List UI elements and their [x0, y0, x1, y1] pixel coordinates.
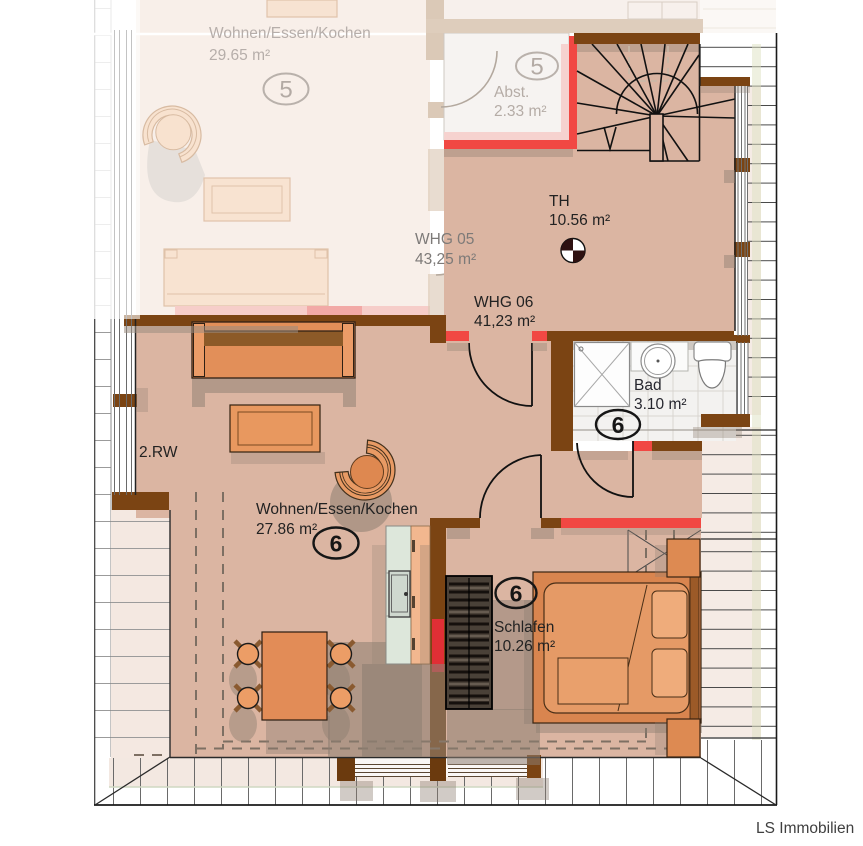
- svg-text:Wohnen/Essen/Kochen: Wohnen/Essen/Kochen: [256, 501, 418, 518]
- svg-text:6: 6: [612, 412, 625, 438]
- svg-text:Schlafen: Schlafen: [494, 619, 554, 636]
- svg-text:TH: TH: [549, 193, 570, 210]
- svg-text:2.RW: 2.RW: [139, 444, 178, 461]
- svg-text:6: 6: [510, 581, 523, 607]
- svg-text:10.26 m²: 10.26 m²: [494, 638, 555, 655]
- svg-text:Bad: Bad: [634, 377, 662, 394]
- svg-text:29.65 m²: 29.65 m²: [209, 47, 270, 64]
- svg-text:41,23 m²: 41,23 m²: [474, 313, 535, 330]
- svg-text:43,25 m²: 43,25 m²: [415, 251, 476, 268]
- svg-text:27.86 m²: 27.86 m²: [256, 521, 317, 538]
- svg-text:10.56 m²: 10.56 m²: [549, 212, 610, 229]
- svg-text:3.10 m²: 3.10 m²: [634, 396, 687, 413]
- svg-text:LS Immobilien: LS Immobilien: [756, 820, 854, 837]
- svg-text:Wohnen/Essen/Kochen: Wohnen/Essen/Kochen: [209, 25, 371, 42]
- svg-text:Abst.: Abst.: [494, 84, 529, 101]
- svg-text:5: 5: [279, 77, 292, 104]
- svg-text:WHG 05: WHG 05: [415, 231, 474, 248]
- svg-text:2.33 m²: 2.33 m²: [494, 103, 547, 120]
- svg-text:6: 6: [330, 531, 343, 557]
- svg-text:5: 5: [530, 54, 543, 81]
- svg-text:WHG 06: WHG 06: [474, 294, 533, 311]
